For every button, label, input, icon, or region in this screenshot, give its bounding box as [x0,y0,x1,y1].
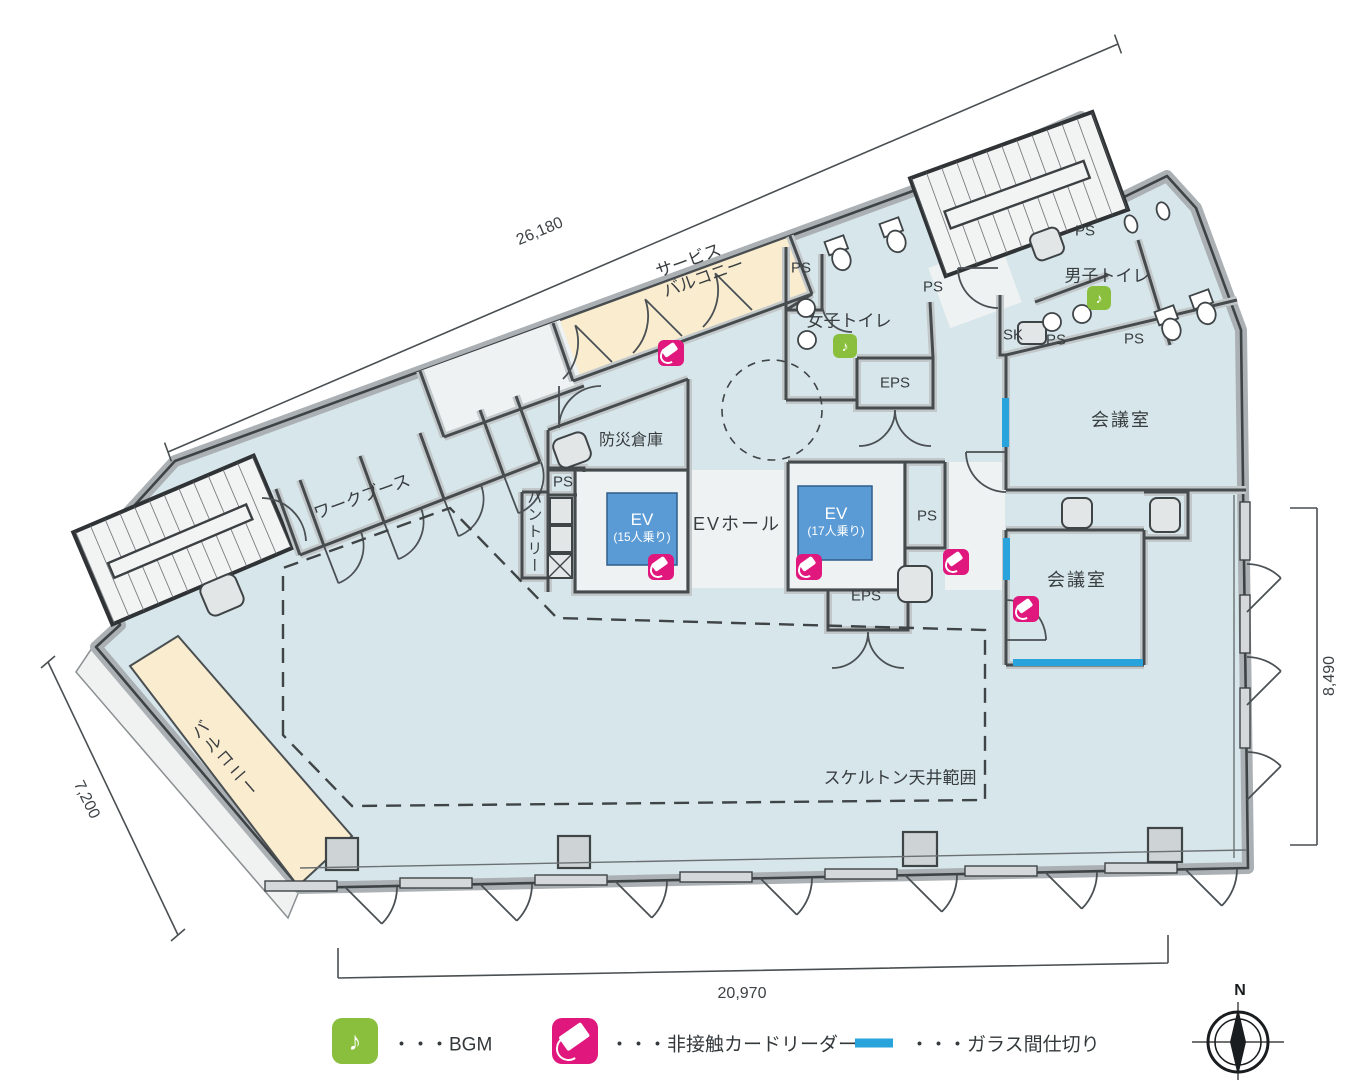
legend-glass-partition-swatch [855,1039,893,1048]
card-reader-icon-ev2 [796,554,822,580]
card-reader-icon-service-balcony [658,340,684,366]
music-note-glyph: ♪ [1096,290,1103,306]
bgm-icon-womens-toilet: ♪ [833,334,857,358]
label-eps-lower: EPS [851,588,881,607]
label-elevator-15: EV (15人乗り) [613,509,670,545]
label-skeleton-ceiling: スケルトン天井範囲 [824,767,977,788]
dimension-right: 8,490 [1320,656,1340,696]
room-label-meeting-room-a: 会議室 [1091,409,1151,432]
room-label-womens-toilet: 女子トイレ [807,310,892,331]
label-eps-upper: EPS [880,375,910,394]
room-label-pantry: パントリー [524,490,543,575]
ev2-name: EV [807,503,864,524]
floor-plan-drawing [0,0,1346,1080]
label-elevator-17: EV (17人乗り) [807,503,864,539]
dimension-bottom: 20,970 [718,984,767,1004]
label-ps-corridor: PS [917,508,937,527]
legend-bgm-label: ・・・BGM [392,1030,492,1057]
floor-plan-page: 26,180 7,200 8,490 20,970 サービス バルコニー 女子ト… [0,0,1346,1080]
label-ps-womens-2: PS [923,279,943,298]
bgm-icon-mens-toilet: ♪ [1087,286,1111,310]
label-sk: SK [1003,327,1023,346]
compass-icon [1192,1002,1284,1080]
room-label-ev-hall: EVホール [693,513,781,536]
room-label-mens-toilet: 男子トイレ [1065,265,1150,286]
ev2-capacity: (17人乗り) [807,524,864,539]
legend-bgm-icon: ♪ [332,1018,378,1064]
music-note-glyph: ♪ [349,1026,362,1057]
label-ps-core: PS [553,474,573,493]
label-ps-mens-3: PS [1124,331,1144,350]
room-label-meeting-room-b: 会議室 [1047,569,1107,592]
card-reader-icon-ev1 [648,554,674,580]
label-ps-womens-1: PS [791,260,811,279]
room-label-disaster-storage: 防災倉庫 [599,431,663,451]
legend-card-reader-label: ・・・非接触カードリーダー [610,1030,857,1057]
ev1-name: EV [613,509,670,530]
label-ps-mens-1: PS [1075,223,1095,242]
legend-glass-partition-label: ・・・ガラス間仕切り [910,1030,1100,1057]
legend-card-reader-icon [552,1018,598,1064]
music-note-glyph: ♪ [842,338,849,354]
ev1-capacity: (15人乗り) [613,530,670,545]
card-reader-icon-corridor [943,549,969,575]
label-ps-mens-2: PS [1046,332,1066,351]
card-reader-icon-meeting-room [1013,596,1039,622]
compass-north-label: N [1234,982,1246,1000]
